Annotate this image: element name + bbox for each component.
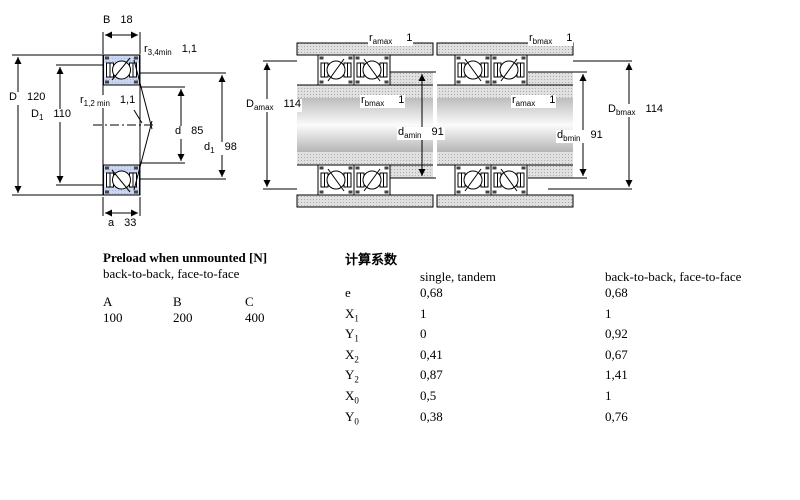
preload-col-header: B xyxy=(173,294,245,310)
preload-value: 100 xyxy=(103,310,173,326)
dim-label-Dbmax: Dbmax114 xyxy=(607,104,664,117)
factor-single-value: 1 xyxy=(420,306,605,327)
factors-col-single: single, tandem xyxy=(420,269,605,285)
dim-label-rbmax-mid: rbmax1 xyxy=(360,95,405,108)
factor-single-value: 0,38 xyxy=(420,409,605,430)
factor-symbol: Y2 xyxy=(345,367,420,388)
dim-label-D1: D1110 xyxy=(30,109,72,122)
factor-pair-value: 0,92 xyxy=(605,326,775,347)
dim-label-r12min: r1,2 min1,1 xyxy=(79,95,136,108)
dim-label-D: D120 xyxy=(8,92,46,105)
left-bearing-diagram xyxy=(12,32,226,216)
factor-pair-value: 0,68 xyxy=(605,285,775,306)
preload-value: 200 xyxy=(173,310,245,326)
dim-label-damin: damin91 xyxy=(397,127,445,140)
dim-label-a: a33 xyxy=(107,218,137,231)
factor-single-value: 0,87 xyxy=(420,367,605,388)
dim-label-ramax-right: ramax1 xyxy=(511,95,556,108)
factor-symbol: X0 xyxy=(345,388,420,409)
factor-single-value: 0,68 xyxy=(420,285,605,306)
factor-pair-value: 1 xyxy=(605,306,775,327)
factor-symbol: X2 xyxy=(345,347,420,368)
factors-empty-header xyxy=(345,269,420,285)
dim-label-d1: d198 xyxy=(203,142,238,155)
calculation-factors-table: single, tandem back-to-back, face-to-fac… xyxy=(345,269,775,429)
factor-single-value: 0,5 xyxy=(420,388,605,409)
back-to-back-arrangement-diagram xyxy=(263,43,436,207)
preload-title: Preload when unmounted [N] xyxy=(103,250,267,266)
dim-label-B: B18 xyxy=(102,15,134,28)
preload-table: A B C 100 200 400 xyxy=(103,294,325,326)
factor-pair-value: 1,41 xyxy=(605,367,775,388)
factor-pair-value: 0,67 xyxy=(605,347,775,368)
bearing-datasheet-page: B18 r3,4min1,1 D120 D1110 r1,2 min1,1 d8… xyxy=(0,0,800,500)
factor-pair-value: 0,76 xyxy=(605,409,775,430)
preload-value: 400 xyxy=(245,310,325,326)
dim-label-Damax: Damax114 xyxy=(245,99,302,112)
dim-label-d: d85 xyxy=(174,126,204,139)
factor-symbol: X1 xyxy=(345,306,420,327)
factors-title: 计算系数 xyxy=(345,249,397,268)
dim-label-r34min: r3,4min1,1 xyxy=(143,44,198,57)
preload-col-header: C xyxy=(245,294,325,310)
dim-label-dbmin: dbmin91 xyxy=(556,130,604,143)
factor-single-value: 0,41 xyxy=(420,347,605,368)
face-to-face-arrangement-diagram xyxy=(437,43,632,207)
preload-subtitle: back-to-back, face-to-face xyxy=(103,266,239,282)
dim-label-ramax-mid: ramax1 xyxy=(368,33,413,46)
factor-symbol: e xyxy=(345,285,420,306)
factor-symbol: Y1 xyxy=(345,326,420,347)
preload-col-header: A xyxy=(103,294,173,310)
factor-single-value: 0 xyxy=(420,326,605,347)
dim-label-rbmax-right: rbmax1 xyxy=(528,33,573,46)
factors-col-pair: back-to-back, face-to-face xyxy=(605,269,775,285)
factor-pair-value: 1 xyxy=(605,388,775,409)
factor-symbol: Y0 xyxy=(345,409,420,430)
